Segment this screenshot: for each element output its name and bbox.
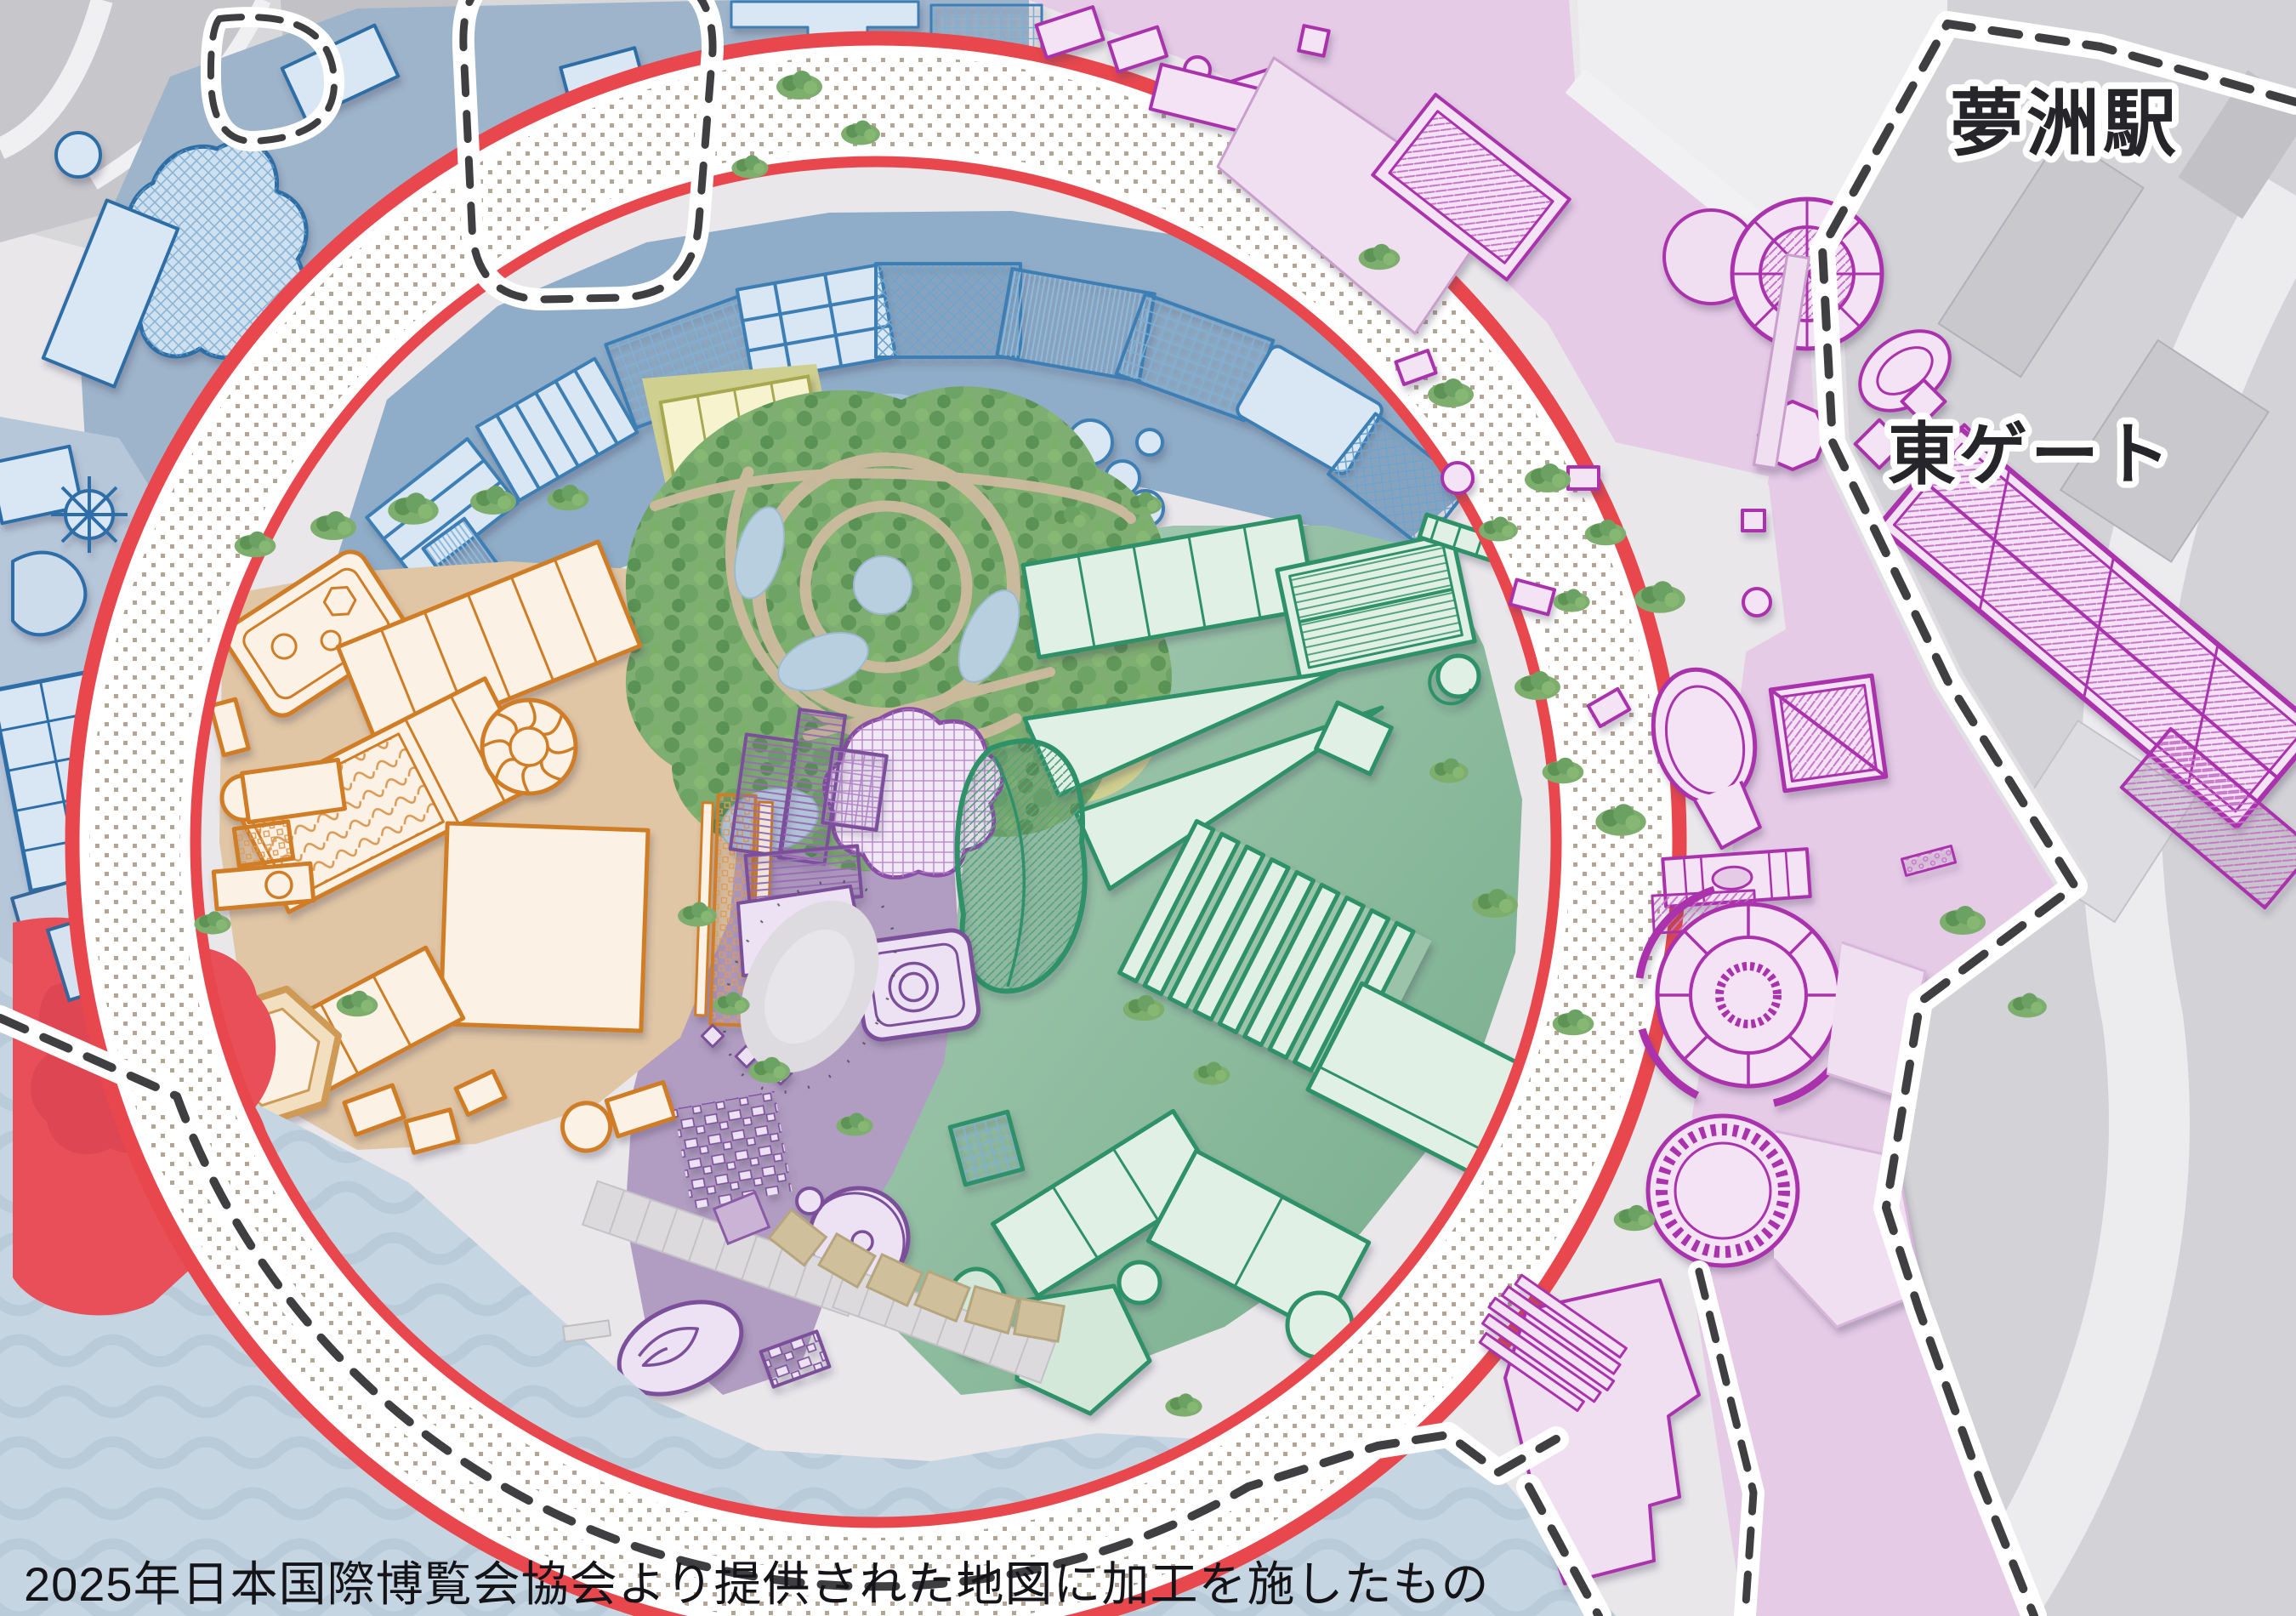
- east-gate-label: 東ゲート: [1888, 417, 2174, 492]
- hatched-square-pavilion: [1770, 675, 1886, 791]
- caption: 2025年日本国際博覧会協会より提供された地図に加工を施したもの: [24, 1557, 1489, 1611]
- pinwheel-pavilion: [482, 700, 576, 794]
- central-pond: [854, 556, 912, 614]
- leaf-pavilion: [958, 741, 1085, 991]
- expo-site-map: 夢洲駅 東ゲート 2025年日本国際博覧会協会より提供された地図に加工を施したも…: [0, 0, 2296, 1616]
- yumeshima-station-label: 夢洲駅: [1950, 83, 2179, 165]
